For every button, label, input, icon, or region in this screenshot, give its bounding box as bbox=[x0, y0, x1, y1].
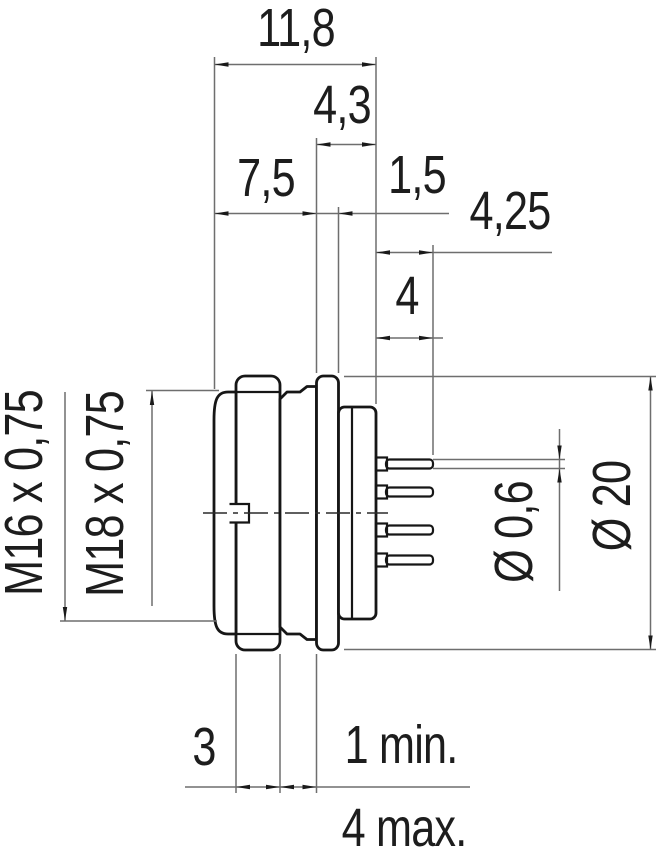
dim-label-pin-diameter: Ø 0,6 bbox=[487, 481, 541, 583]
solder-pin-4 bbox=[376, 554, 433, 567]
dim-label-coupling-thread: M16 x 0,75 bbox=[0, 390, 51, 596]
dim-label-rear-section: 4,3 bbox=[313, 78, 371, 132]
dim-front-length-and-flange bbox=[215, 211, 450, 215]
dim-label-total-length: 11,8 bbox=[257, 1, 335, 55]
dim-rear-section bbox=[317, 142, 377, 146]
dim-label-pin-tail: 4 bbox=[395, 269, 418, 323]
technical-drawing: 11,8 4,3 7,5 1,5 4,25 4 3 1 min. 4 max. … bbox=[0, 0, 657, 850]
dim-label-panel-min: 1 min. bbox=[345, 718, 458, 772]
dim-pin-length bbox=[376, 250, 552, 254]
dim-label-front-length: 7,5 bbox=[237, 151, 295, 205]
dim-label-pin-length: 4,25 bbox=[470, 184, 551, 238]
dim-flange-diameter bbox=[648, 377, 652, 650]
dim-label-panel-max: 4 max. bbox=[342, 801, 467, 850]
connector-side-view bbox=[203, 376, 433, 650]
dim-mounting-thread bbox=[150, 391, 154, 606]
dim-label-flange-diameter: Ø 20 bbox=[585, 461, 639, 551]
dim-label-mounting-thread: M18 x 0,75 bbox=[78, 391, 132, 597]
dim-bottom-row bbox=[185, 785, 470, 789]
dim-label-locknut-width: 3 bbox=[192, 720, 215, 774]
solder-pin-1 bbox=[376, 458, 433, 471]
dim-label-flange-thickness: 1,5 bbox=[388, 148, 446, 202]
dim-total-length bbox=[215, 62, 377, 66]
dim-pin-diameter bbox=[557, 429, 561, 591]
dim-coupling-thread bbox=[63, 392, 67, 621]
solder-pin-3 bbox=[376, 524, 433, 537]
solder-pin-2 bbox=[376, 486, 433, 499]
